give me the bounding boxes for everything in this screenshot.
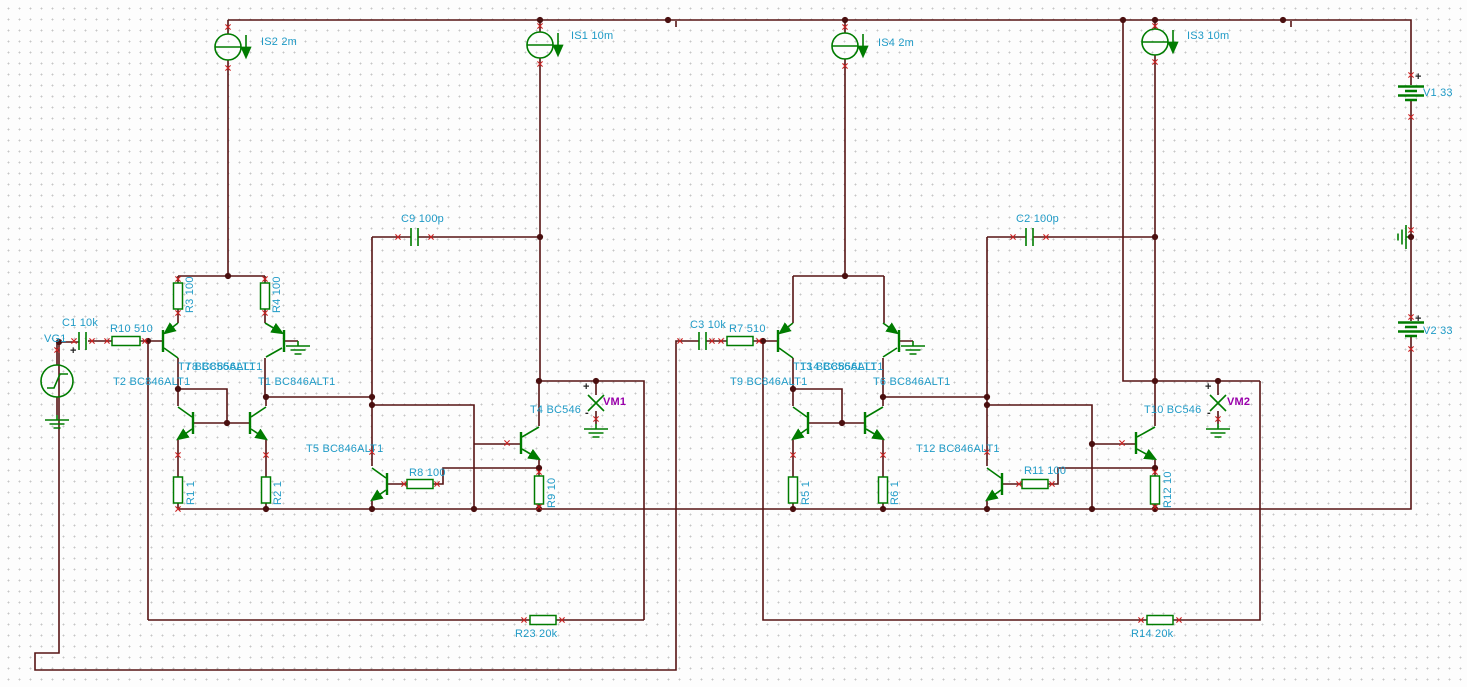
capacitor-c2[interactable] xyxy=(1026,228,1033,246)
resistor-r3[interactable] xyxy=(174,283,183,309)
label-t2: T2 BC846ALT1 xyxy=(113,376,190,388)
label-r5: R5 1 xyxy=(800,481,812,505)
label-r11: R11 100 xyxy=(1024,465,1066,477)
resistor-r23[interactable] xyxy=(530,616,556,625)
label-is4: IS4 2m xyxy=(878,37,914,49)
capacitor-c3[interactable] xyxy=(699,332,706,350)
label-c3: C3 10k xyxy=(690,319,726,331)
label-t8: T8 BC856ALT1 xyxy=(185,361,262,373)
label-r2: R2 1 xyxy=(272,481,284,505)
label-r1: R1 1 xyxy=(185,481,197,505)
label-r6: R6 1 xyxy=(889,481,901,505)
label-r9: R9 10 xyxy=(546,478,558,508)
label-t14: T14 BC856ALT1 xyxy=(800,361,884,373)
label-is2: IS2 2m xyxy=(261,36,297,48)
transistor-t14[interactable] xyxy=(883,323,899,357)
label-r14: R14 20k xyxy=(1131,628,1173,640)
transistor-t7[interactable] xyxy=(163,323,178,358)
resistor-r12[interactable] xyxy=(1151,476,1160,504)
schematic-canvas: { "app": {"view": "circuit-schematic-can… xyxy=(0,0,1467,687)
resistor-r1[interactable] xyxy=(174,477,183,503)
transistor-t4[interactable] xyxy=(521,427,539,459)
label-t6: T6 BC846ALT1 xyxy=(873,376,950,388)
vm1-plus-mark: + xyxy=(583,382,589,392)
capacitor-c9[interactable] xyxy=(411,228,418,246)
transistor-t9[interactable] xyxy=(793,407,808,439)
resistor-r8[interactable] xyxy=(407,480,433,489)
transistor-t13[interactable] xyxy=(778,323,793,358)
signal-generator-vg1[interactable] xyxy=(41,365,73,428)
label-c1: C1 10k xyxy=(62,317,98,329)
current-source-is3[interactable] xyxy=(1142,29,1173,55)
current-source-is1[interactable] xyxy=(527,32,558,58)
label-is1: IS1 10m xyxy=(571,30,613,42)
vm2-plus-mark: + xyxy=(1205,382,1211,392)
label-c2: C2 100p xyxy=(1016,213,1059,225)
capacitor-c1[interactable] xyxy=(79,332,86,350)
label-r3: R3 100 xyxy=(184,276,196,313)
label-t5: T5 BC846ALT1 xyxy=(306,443,383,455)
v1-plus-mark: + xyxy=(1415,72,1421,82)
wire-layer[interactable] xyxy=(35,20,1411,670)
resistor-r5[interactable] xyxy=(789,477,798,503)
label-t9: T9 BC846ALT1 xyxy=(730,376,807,388)
label-r4: R4 100 xyxy=(271,276,283,313)
label-is3: IS3 10m xyxy=(1187,30,1229,42)
label-vm1: VM1 xyxy=(603,396,626,408)
battery-v1[interactable] xyxy=(1398,87,1424,101)
vm1-minus-mark: - xyxy=(585,408,589,418)
ground-t8-base[interactable] xyxy=(286,341,310,354)
junction-dots xyxy=(56,17,1414,512)
label-vg1: VG1 xyxy=(44,333,67,345)
transistor-t5[interactable] xyxy=(372,468,387,500)
label-r7: R7 510 xyxy=(729,323,766,335)
resistor-r6[interactable] xyxy=(879,477,888,503)
transistor-t6[interactable] xyxy=(865,407,883,439)
resistor-r2[interactable] xyxy=(262,477,271,503)
label-t1: T1 BC846ALT1 xyxy=(258,376,335,388)
label-c9: C9 100p xyxy=(401,213,444,225)
ground-t14-base[interactable] xyxy=(901,341,925,354)
label-v1: V1 33 xyxy=(1423,87,1453,99)
resistor-r7[interactable] xyxy=(727,337,753,346)
resistor-r9[interactable] xyxy=(535,476,544,504)
transistor-t12[interactable] xyxy=(987,468,1002,500)
v2-plus-mark: + xyxy=(1415,314,1421,324)
resistor-r11[interactable] xyxy=(1022,480,1048,489)
label-t4: T4 BC546 xyxy=(530,404,581,416)
vg1-plus-mark: + xyxy=(70,346,76,356)
label-r23: R23 20k xyxy=(515,628,557,640)
transistor-t10[interactable] xyxy=(1136,427,1155,459)
resistor-r4[interactable] xyxy=(261,283,270,309)
vm2-minus-mark: - xyxy=(1207,408,1211,418)
transistor-t2[interactable] xyxy=(178,407,193,439)
current-source-is4[interactable] xyxy=(832,33,863,59)
label-r12: R12 10 xyxy=(1162,471,1174,508)
label-t10: T10 BC546 xyxy=(1144,404,1201,416)
transistor-t8[interactable] xyxy=(265,323,284,357)
label-r10: R10 510 xyxy=(110,323,153,335)
schematic-drawing xyxy=(0,0,1467,687)
resistor-r10[interactable] xyxy=(112,337,140,346)
label-v2: V2 33 xyxy=(1423,325,1453,337)
resistor-r14[interactable] xyxy=(1147,616,1173,625)
current-source-is2[interactable] xyxy=(215,34,246,60)
label-vm2: VM2 xyxy=(1227,396,1250,408)
label-t12: T12 BC846ALT1 xyxy=(916,443,1000,455)
label-r8: R8 100 xyxy=(409,467,446,479)
transistor-t1[interactable] xyxy=(250,407,266,439)
